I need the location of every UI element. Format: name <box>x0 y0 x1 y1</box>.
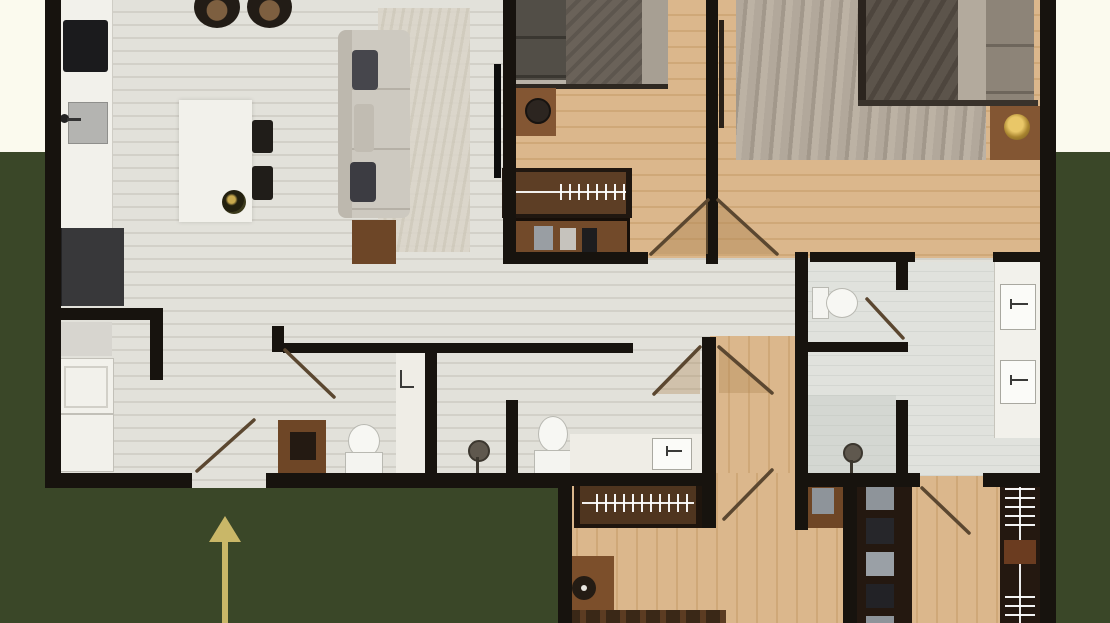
faucet-icon <box>668 450 682 452</box>
master-open-door-leaf <box>719 20 724 128</box>
cooktop <box>63 20 108 72</box>
shower-head-icon <box>843 443 863 463</box>
wall <box>843 473 857 623</box>
entry-arrow-head <box>209 516 241 542</box>
faucet-icon <box>666 446 668 456</box>
bedroom-2-bed-partial <box>566 610 726 623</box>
wardrobe-hangers <box>560 184 626 200</box>
desk-chair <box>534 226 553 250</box>
plant-pot <box>222 190 246 214</box>
bathroom-2-sink <box>652 438 692 470</box>
bathroom-2-toilet-bowl <box>538 416 568 452</box>
laundry-shelf <box>58 322 112 356</box>
folded-clothes <box>866 584 894 608</box>
master-bed-sheet <box>958 0 986 102</box>
kitchen-faucet-spout <box>67 118 81 121</box>
faucet-icon <box>1010 375 1012 385</box>
folded-clothes <box>866 518 894 544</box>
faucet-icon <box>1012 303 1028 305</box>
kitchen-sink <box>68 102 108 144</box>
wall <box>993 252 1040 262</box>
sofa-pillow <box>352 50 378 90</box>
wall <box>702 337 716 528</box>
folded-clothes <box>866 486 894 510</box>
desk-chair <box>560 228 576 250</box>
wall <box>45 0 61 488</box>
shower-head-icon <box>468 440 490 462</box>
wall <box>266 473 572 488</box>
wall <box>503 0 516 264</box>
wall <box>797 473 920 487</box>
wardrobe-hangers <box>1005 488 1035 530</box>
inner-hallway-floor <box>710 336 800 488</box>
wardrobe-hangers <box>596 494 688 512</box>
side-table <box>352 220 396 264</box>
bathroom-1-vanity <box>396 350 426 473</box>
entry-arrow-shaft <box>222 540 228 623</box>
wall <box>45 473 192 488</box>
sofa-pillow <box>354 104 374 152</box>
wall <box>896 252 908 290</box>
folded-clothes <box>866 552 894 576</box>
bedroom-1-sheet <box>642 0 668 84</box>
master-bath-sink <box>1000 360 1036 404</box>
wall <box>45 308 163 320</box>
wall <box>283 343 432 353</box>
shower-stem <box>850 460 853 473</box>
fridge <box>56 228 124 306</box>
shower-stem <box>476 457 479 473</box>
master-gold-lamp <box>1004 114 1030 140</box>
bathroom-1-basin <box>290 432 316 460</box>
dining-chair <box>252 166 273 200</box>
wall <box>506 400 518 473</box>
master-bed-blanket <box>866 0 958 102</box>
wardrobe-hangers <box>1005 596 1035 622</box>
floor-plan-render <box>0 0 1110 623</box>
wall <box>983 473 1056 487</box>
faucet-icon <box>1012 379 1028 381</box>
washer-door <box>64 366 108 408</box>
master-bath-sink <box>1000 284 1036 330</box>
bathroom-1-toilet-tank <box>345 452 383 475</box>
wall <box>425 343 437 473</box>
wall <box>437 343 633 353</box>
wall <box>150 308 163 380</box>
wall <box>572 473 702 486</box>
sofa-pillow <box>350 162 376 202</box>
faucet-icon <box>400 386 414 388</box>
bedroom-2-cabinet-basin <box>812 488 834 514</box>
dining-chair <box>252 120 273 153</box>
bedroom-2-lamp-highlight <box>581 585 587 591</box>
wall <box>1040 0 1056 623</box>
wc-toilet-bowl <box>826 288 858 318</box>
master-bed-footboard <box>858 0 866 104</box>
bedroom-1-lamp <box>525 98 551 124</box>
wall <box>808 342 908 352</box>
folded-clothes <box>866 616 894 623</box>
wall <box>503 252 648 264</box>
master-bed-pillows <box>986 0 1034 100</box>
wall <box>795 252 808 530</box>
wall <box>706 0 718 264</box>
storage-box <box>1004 540 1036 564</box>
dryer <box>56 414 114 472</box>
wall-tv <box>494 64 501 178</box>
desk-chair <box>582 228 597 252</box>
faucet-icon <box>1010 299 1012 309</box>
wall <box>896 400 908 475</box>
bedroom-1-pillows <box>510 0 566 80</box>
bathroom-2-toilet-tank <box>534 450 572 475</box>
bedroom-1-blanket <box>566 0 642 84</box>
wall <box>558 473 572 623</box>
